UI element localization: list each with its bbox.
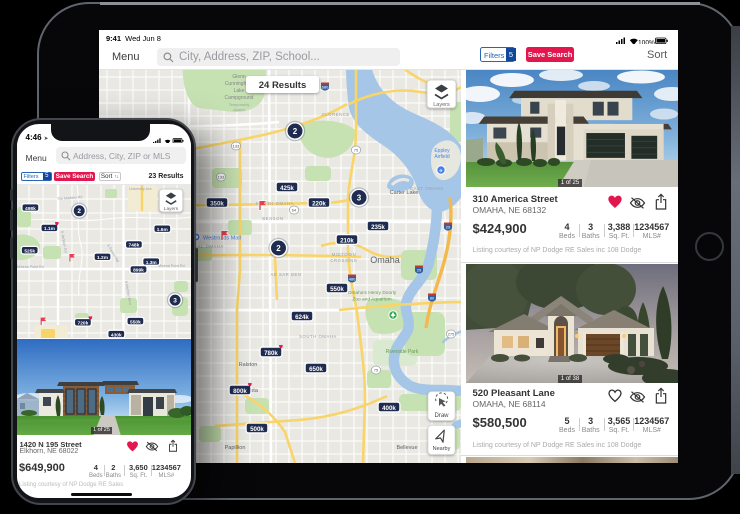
svg-text:Bellevue: Bellevue [396,445,417,451]
svg-text:CROSSING: CROSSING [330,258,357,263]
svg-text:BENSON: BENSON [262,216,283,221]
svg-text:780k: 780k [264,350,278,357]
svg-text:2: 2 [276,244,281,253]
svg-text:720k: 720k [77,321,88,327]
svg-text:Glenn: Glenn [232,74,246,80]
svg-text:1.2m: 1.2m [96,255,107,261]
svg-text:1.6m: 1.6m [156,227,167,233]
svg-text:Riverside Park: Riverside Park [386,349,419,355]
svg-text:680: 680 [322,85,329,90]
svg-text:220k: 220k [312,200,326,207]
svg-text:Airfield: Airfield [434,154,450,160]
svg-text:748k: 748k [128,243,139,249]
svg-text:480: 480 [349,277,356,282]
svg-text:Omaha's Henry Doorly: Omaha's Henry Doorly [348,290,397,296]
svg-text:624k: 624k [295,314,309,321]
svg-text:2: 2 [77,208,81,215]
svg-text:29: 29 [446,225,451,230]
svg-text:75: 75 [374,368,379,373]
svg-text:550k: 550k [330,286,344,293]
svg-text:1.1m: 1.1m [43,226,54,232]
svg-text:University Ave: University Ave [129,187,152,191]
svg-text:Zoo and Aquarium: Zoo and Aquarium [352,297,391,303]
svg-text:498k: 498k [25,206,36,212]
svg-text:AK SAR BEN: AK SAR BEN [270,272,301,277]
svg-text:29: 29 [417,268,422,273]
svg-text:800k: 800k [233,388,247,395]
svg-text:64: 64 [292,208,297,213]
svg-text:550k: 550k [130,320,141,326]
svg-text:1.3m: 1.3m [145,260,156,266]
svg-text:2: 2 [293,127,298,136]
svg-text:Layers: Layers [433,102,450,108]
svg-text:Draw: Draw [434,413,449,419]
svg-text:525k: 525k [24,249,35,255]
svg-text:SOUTH OMAHA: SOUTH OMAHA [299,334,337,339]
svg-text:Lake: Lake [234,88,245,94]
svg-text:899k: 899k [133,268,144,274]
svg-text:75: 75 [354,148,359,153]
svg-text:500k: 500k [250,426,264,433]
svg-text:350k: 350k [210,200,224,207]
svg-text:MIDTOWN: MIDTOWN [332,252,357,257]
svg-text:Mineral Point Rd: Mineral Point Rd [17,265,44,269]
svg-text:closed: closed [233,107,245,112]
svg-text:133: 133 [218,175,225,180]
svg-text:Omaha: Omaha [370,255,400,265]
svg-text:Mineral Point Rd: Mineral Point Rd [158,264,185,268]
svg-text:24 Results: 24 Results [259,80,307,91]
svg-text:Layers: Layers [163,206,178,212]
svg-text:210k: 210k [340,237,354,244]
svg-text:Nearby: Nearby [433,446,451,452]
svg-text:133: 133 [233,144,240,149]
svg-text:425k: 425k [280,185,294,192]
svg-text:80: 80 [430,296,435,301]
svg-text:275: 275 [448,332,455,337]
svg-text:Ralston: Ralston [239,362,258,368]
svg-text:400k: 400k [382,405,396,412]
svg-text:650k: 650k [309,366,323,373]
svg-text:235k: 235k [371,224,385,231]
svg-text:3: 3 [173,298,177,305]
svg-text:Campground: Campground [225,95,254,101]
svg-text:3: 3 [357,193,362,202]
svg-text:Papillion: Papillion [225,445,246,451]
svg-text:FLORENCE: FLORENCE [322,112,350,117]
svg-text:✈: ✈ [439,169,443,175]
svg-text:Carter Lake: Carter Lake [390,190,419,196]
